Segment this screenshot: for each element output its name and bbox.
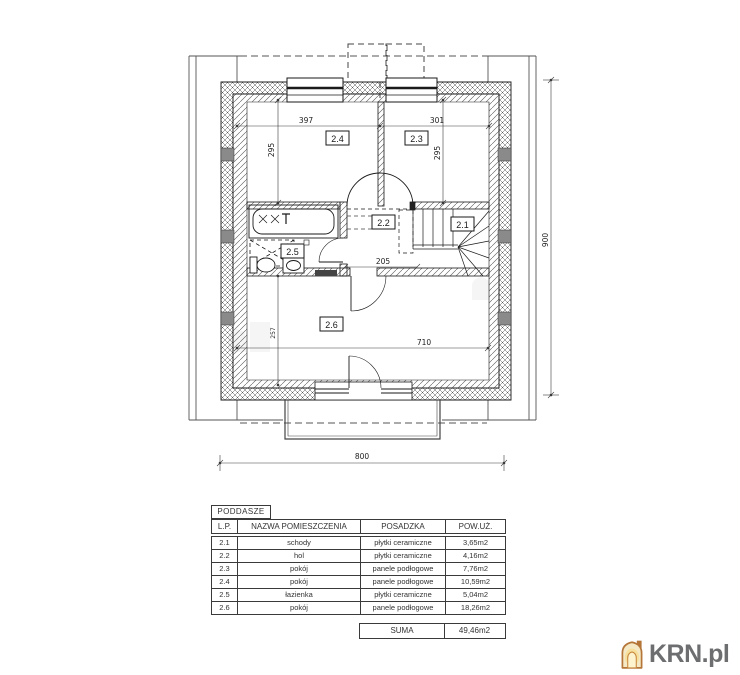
washbasin-icon <box>283 258 304 273</box>
table-header: L.P. NAZWA POMIESZCZENIA POSADZKA POW.UŻ… <box>211 519 506 534</box>
row-name: pokój <box>238 576 361 588</box>
svg-text:2.6: 2.6 <box>325 320 338 330</box>
room-label-2-2: 2.2 <box>372 215 395 229</box>
dim-top-right: 301 <box>430 116 445 125</box>
col-header-area: POW.UŻ. <box>446 520 505 533</box>
table-row: 2.5 łazienka płytki ceramiczne 5,04m2 <box>212 589 505 602</box>
radiator-icon <box>315 270 337 276</box>
row-floor: panele podłogowe <box>361 563 446 575</box>
row-floor: płytki ceramiczne <box>361 537 446 549</box>
dim-total-width: 800 <box>355 452 370 461</box>
balcony-outline <box>285 400 440 439</box>
room-label-2-3: 2.3 <box>405 131 428 145</box>
house-icon <box>617 638 647 670</box>
table-row: 2.3 pokój panele podłogowe 7,76m2 <box>212 563 505 576</box>
dim-total-height: 900 <box>541 233 550 248</box>
col-header-name: NAZWA POMIESZCZENIA <box>238 520 361 533</box>
dim-inner-width: 710 <box>417 338 432 347</box>
dim-side-left: 295 <box>267 143 276 158</box>
faint-house-watermark <box>228 277 490 352</box>
row-area: 18,26m2 <box>446 602 505 614</box>
row-floor: płytki ceramiczne <box>361 550 446 562</box>
row-name: pokój <box>238 563 361 575</box>
room-table: 2.1 schody płytki ceramiczne 3,65m2 2.2 … <box>211 536 506 615</box>
dim-side-right: 295 <box>433 146 442 161</box>
table-title: PODDASZE <box>211 505 271 519</box>
floor-plan: 397 301 295 295 205 710 257 800 900 2.4 … <box>0 0 740 500</box>
room-label-2-6: 2.6 <box>320 317 343 331</box>
table-row: 2.2 hol płytki ceramiczne 4,16m2 <box>212 550 505 563</box>
row-lp: 2.2 <box>212 550 238 562</box>
row-floor: panele podłogowe <box>361 576 446 588</box>
table-row: 2.1 schody płytki ceramiczne 3,65m2 <box>212 537 505 550</box>
row-name: schody <box>238 537 361 549</box>
row-lp: 2.5 <box>212 589 238 601</box>
row-lp: 2.1 <box>212 537 238 549</box>
svg-text:2.2: 2.2 <box>377 218 390 228</box>
row-area: 4,16m2 <box>446 550 505 562</box>
table-row: 2.6 pokój panele podłogowe 18,26m2 <box>212 602 505 614</box>
svg-text:2.3: 2.3 <box>410 134 423 144</box>
table-row: 2.4 pokój panele podłogowe 10,59m2 <box>212 576 505 589</box>
krn-watermark: KRN.pl <box>617 638 729 670</box>
toilet-icon <box>250 257 275 273</box>
row-area: 7,76m2 <box>446 563 505 575</box>
room-label-2-5: 2.5 <box>281 240 309 258</box>
row-area: 5,04m2 <box>446 589 505 601</box>
sum-label: SUMA <box>360 624 445 638</box>
exterior-walls <box>221 82 511 400</box>
row-lp: 2.6 <box>212 602 238 614</box>
row-name: pokój <box>238 602 361 614</box>
under-stair-dashed <box>347 216 372 229</box>
brand-text: KRN.pl <box>649 640 729 669</box>
room-labels: 2.4 2.3 2.2 2.1 2.5 2.6 <box>281 131 474 331</box>
svg-text:2.5: 2.5 <box>286 247 299 257</box>
bathtub-icon <box>249 205 338 238</box>
svg-text:2.4: 2.4 <box>331 134 344 144</box>
row-lp: 2.3 <box>212 563 238 575</box>
row-floor: płytki ceramiczne <box>361 589 446 601</box>
row-area: 3,65m2 <box>446 537 505 549</box>
stairs-icon <box>399 202 489 276</box>
room-label-2-1: 2.1 <box>451 217 474 231</box>
col-header-floor: POSADZKA <box>361 520 446 533</box>
room-label-2-4: 2.4 <box>326 131 349 145</box>
floorplan-page: 397 301 295 295 205 710 257 800 900 2.4 … <box>0 0 740 675</box>
sum-row: SUMA 49,46m2 <box>359 623 506 639</box>
row-name: łazienka <box>238 589 361 601</box>
svg-text:2.1: 2.1 <box>456 220 469 230</box>
col-header-lp: L.P. <box>212 520 238 533</box>
dim-room26-depth: 257 <box>270 327 277 339</box>
row-name: hol <box>238 550 361 562</box>
dim-top-left: 397 <box>299 116 314 125</box>
row-floor: panele podłogowe <box>361 602 446 614</box>
row-area: 10,59m2 <box>446 576 505 588</box>
sum-value: 49,46m2 <box>445 624 504 638</box>
row-lp: 2.4 <box>212 576 238 588</box>
dim-hall: 205 <box>376 257 391 266</box>
